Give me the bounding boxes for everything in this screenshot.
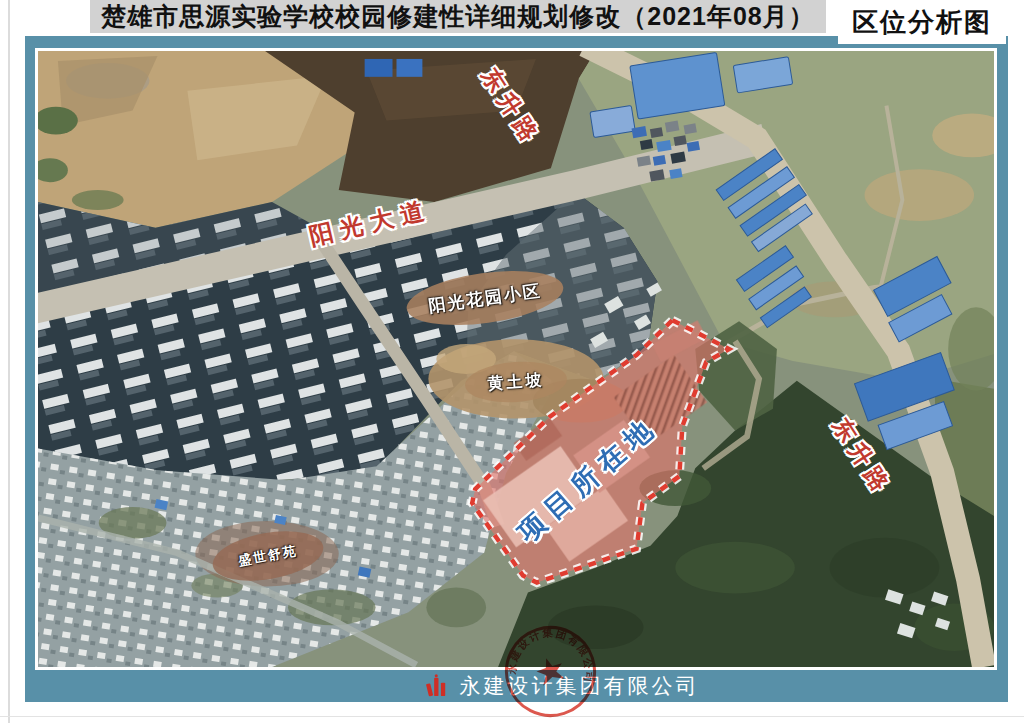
satellite-map: 东升路 阳光大道 东升路 阳光花园小区 黄土坡 盛世舒苑 项目所在地 [38, 51, 994, 667]
company-logo-icon [426, 674, 450, 699]
drawing-type-label: 区位分析图 [838, 0, 1006, 44]
scan-edge-artifact [8, 0, 10, 723]
map-frame: 东升路 阳光大道 东升路 阳光花园小区 黄土坡 盛世舒苑 项目所在地 永建设计集… [25, 36, 1008, 702]
map-border: 东升路 阳光大道 东升路 阳光花园小区 黄土坡 盛世舒苑 项目所在地 [35, 48, 997, 670]
company-seal-stamp: 永建设计集团有限公司 [503, 624, 598, 719]
page-title: 楚雄市思源实验学校校园修建性详细规划修改（2021年08月） [90, 0, 826, 33]
